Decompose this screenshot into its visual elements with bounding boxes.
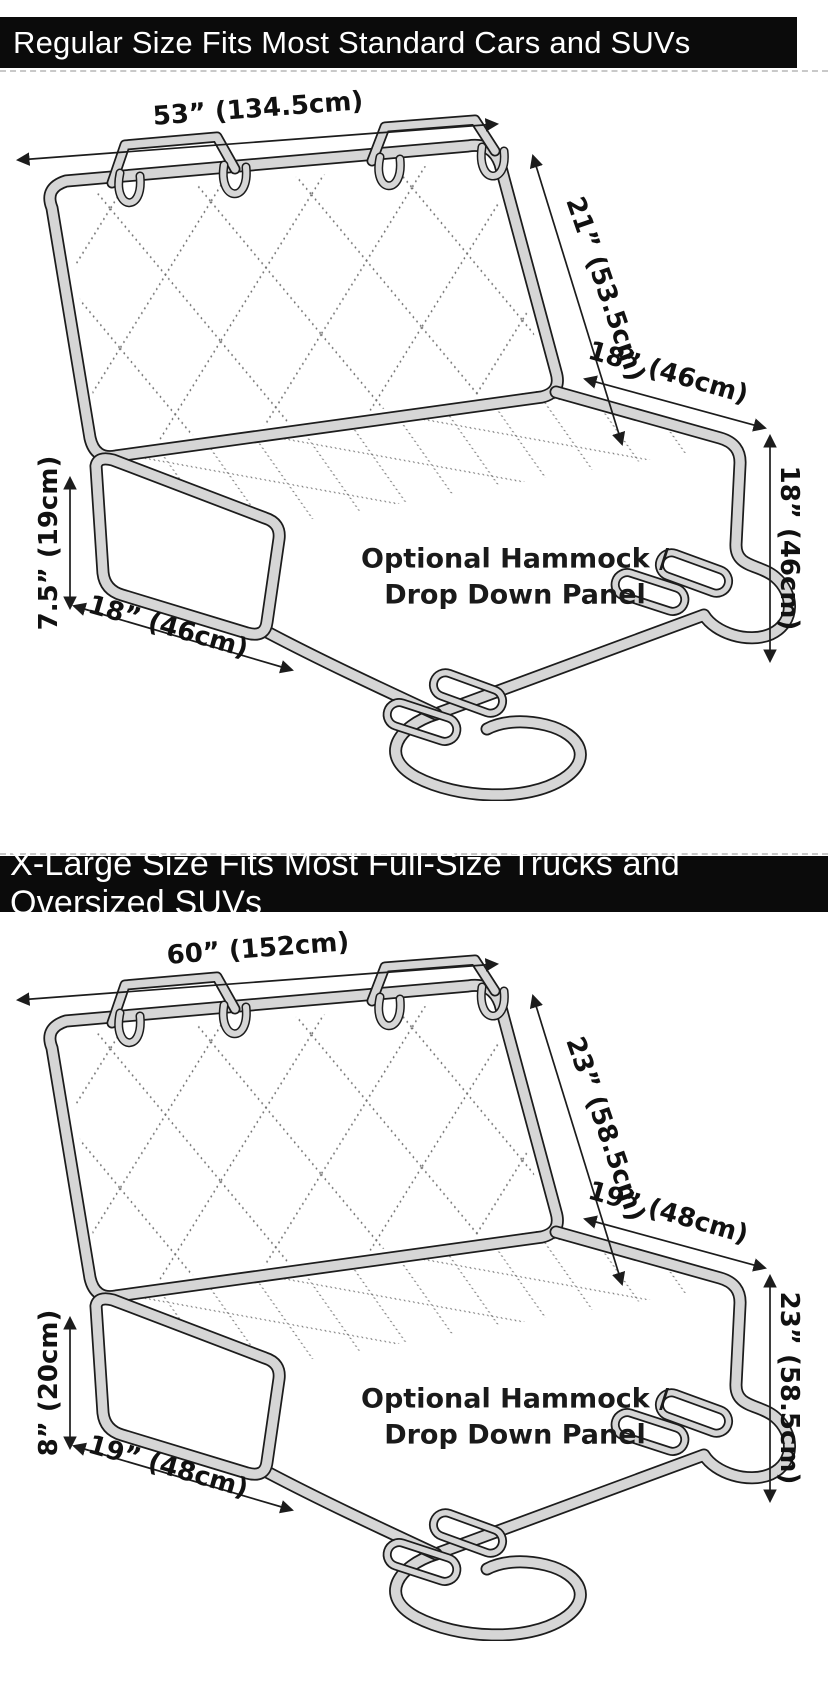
side-drop-label: 23” (58.5cm) xyxy=(774,1292,804,1485)
flap-height-label: 7.5” (19cm) xyxy=(34,456,64,631)
hammock-note: Optional Hammock / Drop Down Panel xyxy=(361,1382,669,1455)
x-large-size-banner: X-Large Size Fits Most Full-Size Trucks … xyxy=(0,856,828,912)
hammock-note: Optional Hammock / Drop Down Panel xyxy=(361,542,669,615)
flap-height-label: 8” (20cm) xyxy=(34,1310,64,1457)
x-large-size-diagram: 60” (152cm) 23” (58.5cm) 19” (48cm) 23” … xyxy=(0,916,828,1641)
regular-size-diagram: 53” (134.5cm) 21” (53.5cm) 18” (46cm) 18… xyxy=(0,76,828,801)
dashed-separator xyxy=(0,70,828,72)
regular-size-banner: Regular Size Fits Most Standard Cars and… xyxy=(0,17,797,68)
side-drop-label: 18” (46cm) xyxy=(774,466,804,631)
